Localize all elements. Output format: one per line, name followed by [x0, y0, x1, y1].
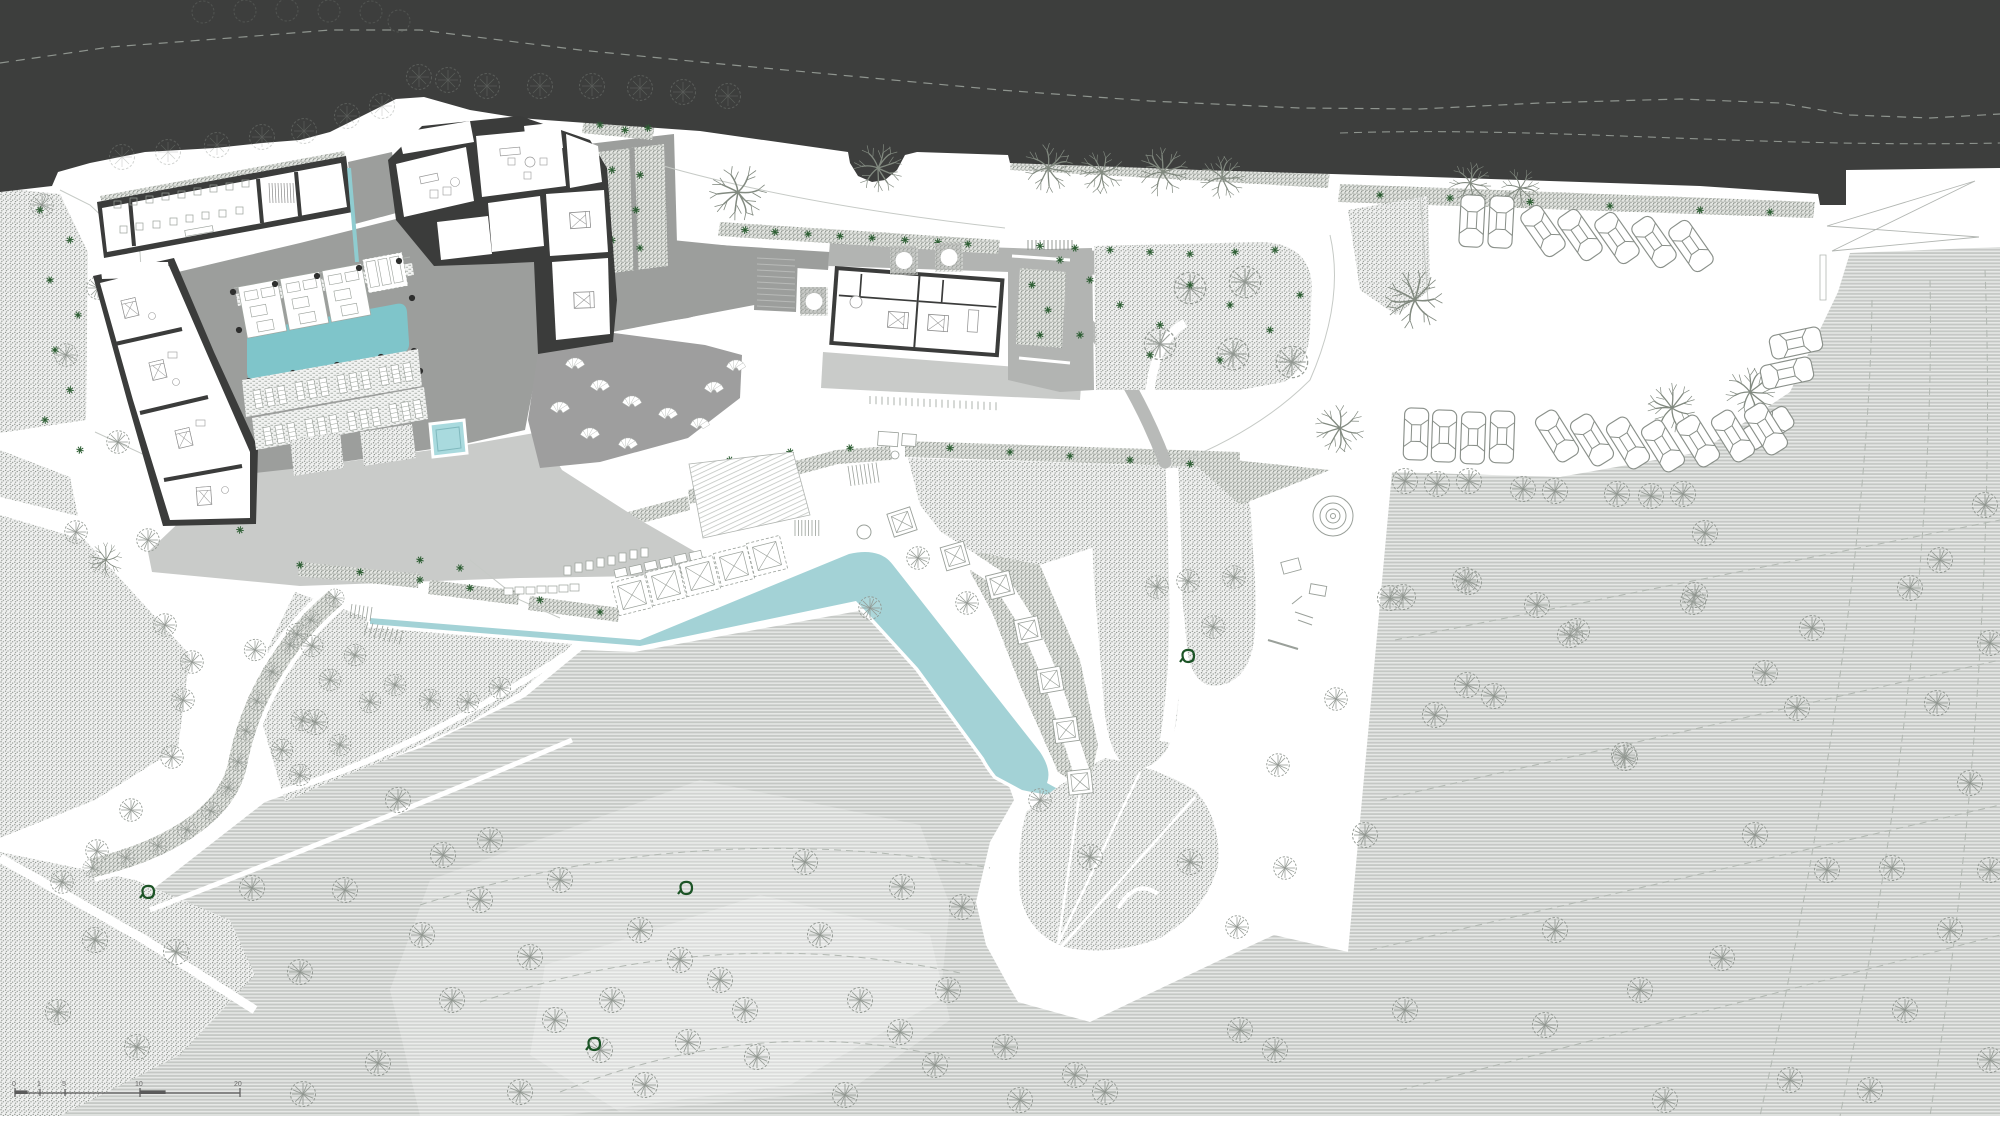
svg-text:10: 10 — [135, 1081, 143, 1088]
svg-text:1: 1 — [37, 1081, 41, 1088]
svg-text:0: 0 — [12, 1081, 16, 1088]
svg-text:5: 5 — [62, 1081, 66, 1088]
svg-text:20: 20 — [234, 1081, 242, 1088]
